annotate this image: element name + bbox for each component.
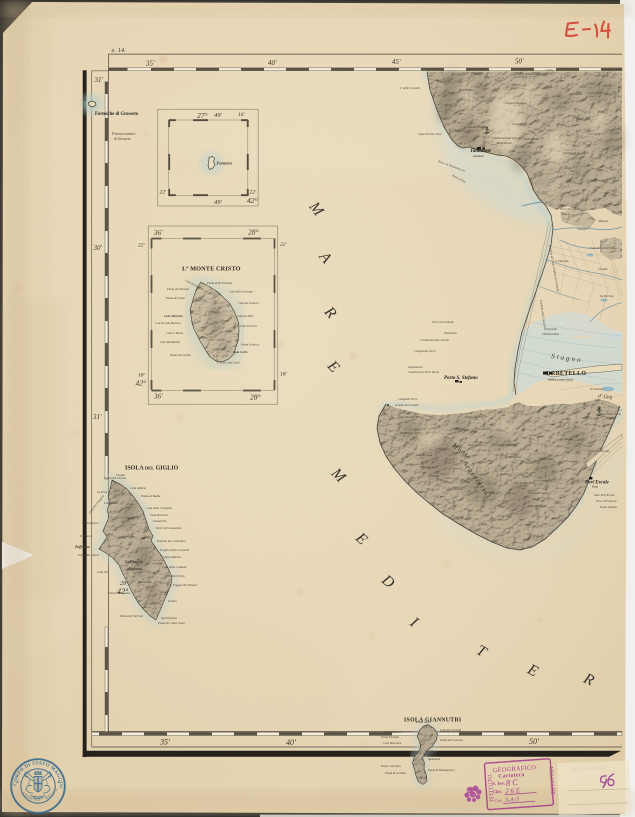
svg-text:Cala del Pino: Cala del Pino [237, 314, 254, 318]
svg-text:Castelpelo: Castelpelo [138, 580, 152, 584]
svg-text:Cala dei Giunchi: Cala dei Giunchi [238, 301, 259, 305]
svg-text:42°: 42° [247, 196, 258, 205]
svg-text:Scazzo: Scazzo [168, 599, 177, 603]
svg-text:S.ta Bernardina: S.ta Bernardina [468, 125, 488, 129]
svg-text:Punta della Fortezza: Punta della Fortezza [206, 281, 233, 285]
svg-text:Punta alle Grotte: Punta alle Grotte [169, 353, 192, 357]
svg-text:M.te Vitozzo: M.te Vitozzo [458, 88, 474, 92]
svg-text:Cala dei Granghi: Cala dei Granghi [440, 728, 461, 732]
svg-text:Cavallo: Cavallo [598, 267, 608, 271]
svg-text:Capelle della Massa: Capelle della Massa [515, 72, 540, 76]
svg-text:Vigna Marina: Vigna Marina [163, 555, 181, 559]
svg-text:Le Socie: Le Socie [589, 132, 601, 136]
svg-text:ORBETELLO: ORBETELLO [546, 371, 586, 377]
svg-text:40': 40' [286, 738, 296, 747]
svg-text:Poggio l'Apparita: Poggio l'Apparita [504, 101, 527, 105]
svg-text:Cala Carlò: Cala Carlò [233, 350, 248, 354]
svg-text:Punta Scirocco: Punta Scirocco [240, 343, 260, 347]
svg-text:22': 22' [160, 190, 168, 196]
svg-text:31': 31' [92, 413, 102, 421]
svg-text:Clas.: Clas. [492, 789, 502, 795]
svg-text:50': 50' [529, 737, 539, 746]
svg-text:42°: 42° [136, 379, 147, 388]
svg-text:Capo d'Uomo Torre: Capo d'Uomo Torre [418, 132, 443, 136]
svg-text:Cala Marciana: Cala Marciana [383, 741, 402, 745]
svg-text:Sparavienza: Sparavienza [161, 616, 177, 620]
svg-text:50': 50' [515, 58, 524, 66]
svg-text:45': 45' [392, 58, 401, 66]
svg-text:Cala Galera Torre: Cala Galera Torre [513, 481, 536, 485]
svg-text:Cala Mandolina: Cala Mandolina [160, 340, 180, 344]
svg-text:Cala Allume: Cala Allume [130, 486, 147, 490]
svg-text:Punta S. Caterina: Punta S. Caterina [587, 449, 610, 453]
svg-text:Casa della Duchessa: Casa della Duchessa [590, 246, 616, 250]
svg-text:Capo d'Uomo Torre: Capo d'Uomo Torre [398, 415, 423, 419]
svg-text:Majorana: Majorana [569, 92, 583, 96]
svg-text:16': 16' [238, 112, 246, 118]
svg-text:40': 40' [268, 59, 277, 67]
svg-text:Fibbiafondata: Fibbiafondata [541, 332, 560, 336]
svg-text:Terra rossa: Terra rossa [540, 457, 554, 461]
svg-text:Grotta: Grotta [562, 417, 570, 421]
svg-text:di Grosseto: di Grosseto [114, 137, 131, 141]
svg-text:31': 31' [94, 76, 104, 84]
svg-text:N. Inv.: N. Inv. [492, 780, 505, 786]
svg-text:Cala delle Campane: Cala delle Campane [146, 506, 173, 510]
svg-text:Punta secca: Punta secca [415, 720, 431, 724]
svg-text:Spadino: Spadino [500, 472, 510, 476]
svg-text:Il Passionista: Il Passionista [504, 455, 522, 459]
svg-text:Poggio dei Tini: Poggio dei Tini [464, 415, 484, 419]
svg-text:Punta di Badia: Punta di Badia [140, 494, 161, 498]
svg-text:Il Fariglione: Il Fariglione [81, 521, 99, 525]
svg-text:Calagrande Torre: Calagrande Torre [414, 349, 436, 353]
svg-text:Punta d'Avola: Punta d'Avola [599, 505, 617, 509]
svg-text:Forte della Stella: Forte della Stella [599, 412, 621, 416]
svg-text:Cala dei Santi: Cala dei Santi [530, 491, 547, 495]
svg-text:Cala delle Caldane: Cala delle Caldane [162, 565, 187, 569]
svg-text:22': 22' [280, 242, 288, 248]
svg-text:La Fragola: La Fragola [124, 560, 143, 564]
svg-text:Torre del Lazzaretto: Torre del Lazzaretto [156, 526, 182, 530]
svg-text:Telegrafo: Telegrafo [471, 71, 483, 75]
svg-text:Scoglio del Corallo: Scoglio del Corallo [395, 403, 419, 407]
svg-text:Punta di Capel rosso: Punta di Capel rosso [157, 621, 185, 625]
svg-text:ISOLA GIANNUTRI: ISOLA GIANNUTRI [404, 718, 462, 724]
svg-text:Formica: Formica [217, 161, 233, 166]
svg-text:Poggio del Pelame: Poggio del Pelame [172, 583, 198, 587]
svg-text:Osiella dei due Cervi: Osiella dei due Cervi [563, 151, 589, 155]
svg-text:22': 22' [250, 190, 258, 196]
svg-text:Punta Pennata: Punta Pennata [380, 735, 399, 739]
svg-text:Punta del Santo: Punta del Santo [165, 296, 186, 300]
svg-text:Cala Maestra: Cala Maestra [164, 314, 183, 318]
svg-text:Cas.: Cas. [495, 798, 503, 804]
svg-text:mandam.: mandam. [473, 154, 484, 158]
svg-text:Cala della Fortezza: Cala della Fortezza [229, 290, 253, 294]
svg-text:22': 22' [138, 243, 146, 249]
svg-text:T. Ciana: T. Ciana [498, 499, 509, 503]
svg-text:Punta Calcinaia: Punta Calcinaia [380, 764, 401, 768]
svg-text:G.ta di Cala Carlò: G.ta di Cala Carlò [217, 361, 240, 365]
svg-text:S. Giovese: S. Giovese [478, 427, 491, 431]
svg-text:Sbar. Port'Ercole: Sbar. Port'Ercole [594, 493, 615, 497]
svg-text:Spalmatoi: Spalmatoi [428, 757, 440, 761]
svg-text:Scoglia rossa: Scoglia rossa [416, 453, 433, 457]
svg-text:36': 36' [153, 229, 163, 237]
svg-text:35': 35' [159, 738, 170, 747]
svg-text:e. 14.: e. 14. [112, 47, 127, 54]
svg-text:28°: 28° [248, 228, 259, 237]
svg-text:Argentarola: Argentarola [407, 365, 423, 369]
svg-text:27°: 27° [197, 111, 208, 120]
svg-text:Zuffolano: Zuffolano [74, 545, 90, 549]
svg-text:Cassiarella Torre diruta: Cassiarella Torre diruta [420, 338, 450, 342]
svg-text:Punta di Mezzogiorno: Punta di Mezzogiorno [427, 768, 455, 772]
svg-text:18': 18' [280, 372, 288, 378]
svg-text:28°: 28° [250, 393, 261, 402]
svg-text:49': 49' [214, 199, 223, 206]
svg-text:Pozzarello: Pozzarello [443, 331, 457, 335]
svg-text:Dog.a: Dog.a [561, 212, 570, 216]
svg-text:Calamoresca Torre diruta: Calamoresca Torre diruta [408, 370, 440, 374]
svg-text:36': 36' [153, 393, 163, 401]
svg-text:Poderabbili: Poderabbili [523, 137, 538, 141]
svg-text:35': 35' [145, 60, 155, 68]
svg-text:Fornace: Fornace [576, 227, 588, 231]
svg-text:Punta del Sinchi: Punta del Sinchi [77, 553, 99, 557]
svg-text:Lisola Bianca: Lisola Bianca [445, 487, 463, 491]
svg-text:Punta del Diavolo: Punta del Diavolo [166, 287, 189, 291]
svg-text:L'Abbonamento murelle: L'Abbonamento murelle [491, 136, 521, 140]
svg-text:42°: 42° [117, 587, 129, 596]
svg-text:Fontebbiosa: Fontebbiosa [511, 122, 527, 126]
svg-text:Albegna: Albegna [597, 219, 608, 223]
svg-text:Cala S. Maria: Cala S. Maria [166, 331, 184, 335]
svg-text:Cala del Porco: Cala del Porco [528, 504, 547, 508]
svg-text:Poggio Raso: Poggio Raso [467, 443, 484, 447]
svg-text:Terrarossa: Terrarossa [590, 387, 603, 391]
svg-text:Borg: Borg [592, 485, 598, 489]
svg-text:Cala Maestra: Cala Maestra [384, 730, 401, 734]
svg-text:Scoglio della Cannelle: Scoglio della Cannelle [160, 548, 190, 552]
svg-text:Punta del Serrone: Punta del Serrone [119, 614, 144, 618]
svg-text:Torre di Lividonia: Torre di Lividonia [432, 320, 454, 324]
svg-text:Giannella: Giannella [545, 327, 557, 331]
svg-text:G.ta di Cala Maestra: G.ta di Cala Maestra [155, 321, 181, 325]
svg-text:Punta di Grottaci: Punta di Grottaci [384, 771, 406, 775]
svg-text:30': 30' [93, 244, 103, 252]
svg-text:Formiche di Grosseto: Formiche di Grosseto [95, 112, 139, 117]
svg-text:Cannelle Torre: Cannelle Torre [420, 465, 439, 469]
svg-text:T. delle Cannelle: T. delle Cannelle [400, 86, 421, 90]
svg-text:I Grottini: I Grottini [451, 427, 463, 431]
svg-text:Fanarazza: Fanarazza [103, 501, 118, 505]
svg-text:Aggiunta: Aggiunta [127, 567, 142, 571]
svg-text:S. Liberata: S. Liberata [555, 259, 569, 263]
svg-text:Maddalena Torre: Maddalena Torre [399, 431, 422, 435]
svg-text:Torricella: Torricella [172, 574, 185, 578]
svg-text:Molini a vento diruti: Molini a vento diruti [547, 378, 573, 382]
svg-text:Fenajo: Fenajo [115, 473, 125, 477]
svg-text:Cala del: Cala del [97, 570, 108, 574]
svg-text:49': 49' [214, 112, 223, 119]
svg-text:La Parrina: La Parrina [599, 294, 614, 298]
svg-text:Lazzaretto: Lazzaretto [152, 519, 167, 523]
svg-text:Cala Scirocco: Cala Scirocco [240, 324, 257, 328]
svg-text:S. Caterina: S. Caterina [560, 437, 574, 441]
svg-text:SS. Trinità convento: SS. Trinità convento [492, 443, 517, 447]
svg-text:Il Franco: Il Franco [79, 534, 93, 538]
svg-text:La Pesa: La Pesa [96, 490, 108, 494]
svg-text:Porto S. Stefano: Porto S. Stefano [444, 376, 478, 381]
svg-text:Formica minore: Formica minore [111, 132, 136, 136]
svg-text:Casale: Casale [545, 68, 554, 72]
svg-text:Pozzolo del Castellaro: Pozzolo del Castellaro [156, 539, 186, 543]
svg-text:Torre delle Saline: Torre delle Saline [560, 207, 582, 211]
svg-text:Torre di Fonache: Torre di Fonache [596, 499, 617, 503]
svg-text:Punta del Cannone: Punta del Cannone [439, 738, 464, 742]
svg-text:Calapiatti Torre: Calapiatti Torre [398, 397, 418, 401]
svg-text:Poggio Alto: Poggio Alto [575, 117, 591, 121]
svg-text:I.º MONTE CRISTO: I.º MONTE CRISTO [182, 266, 241, 273]
svg-text:Cala Brinella: Cala Brinella [150, 513, 168, 517]
svg-text:Torre diruta: Torre diruta [497, 141, 512, 145]
